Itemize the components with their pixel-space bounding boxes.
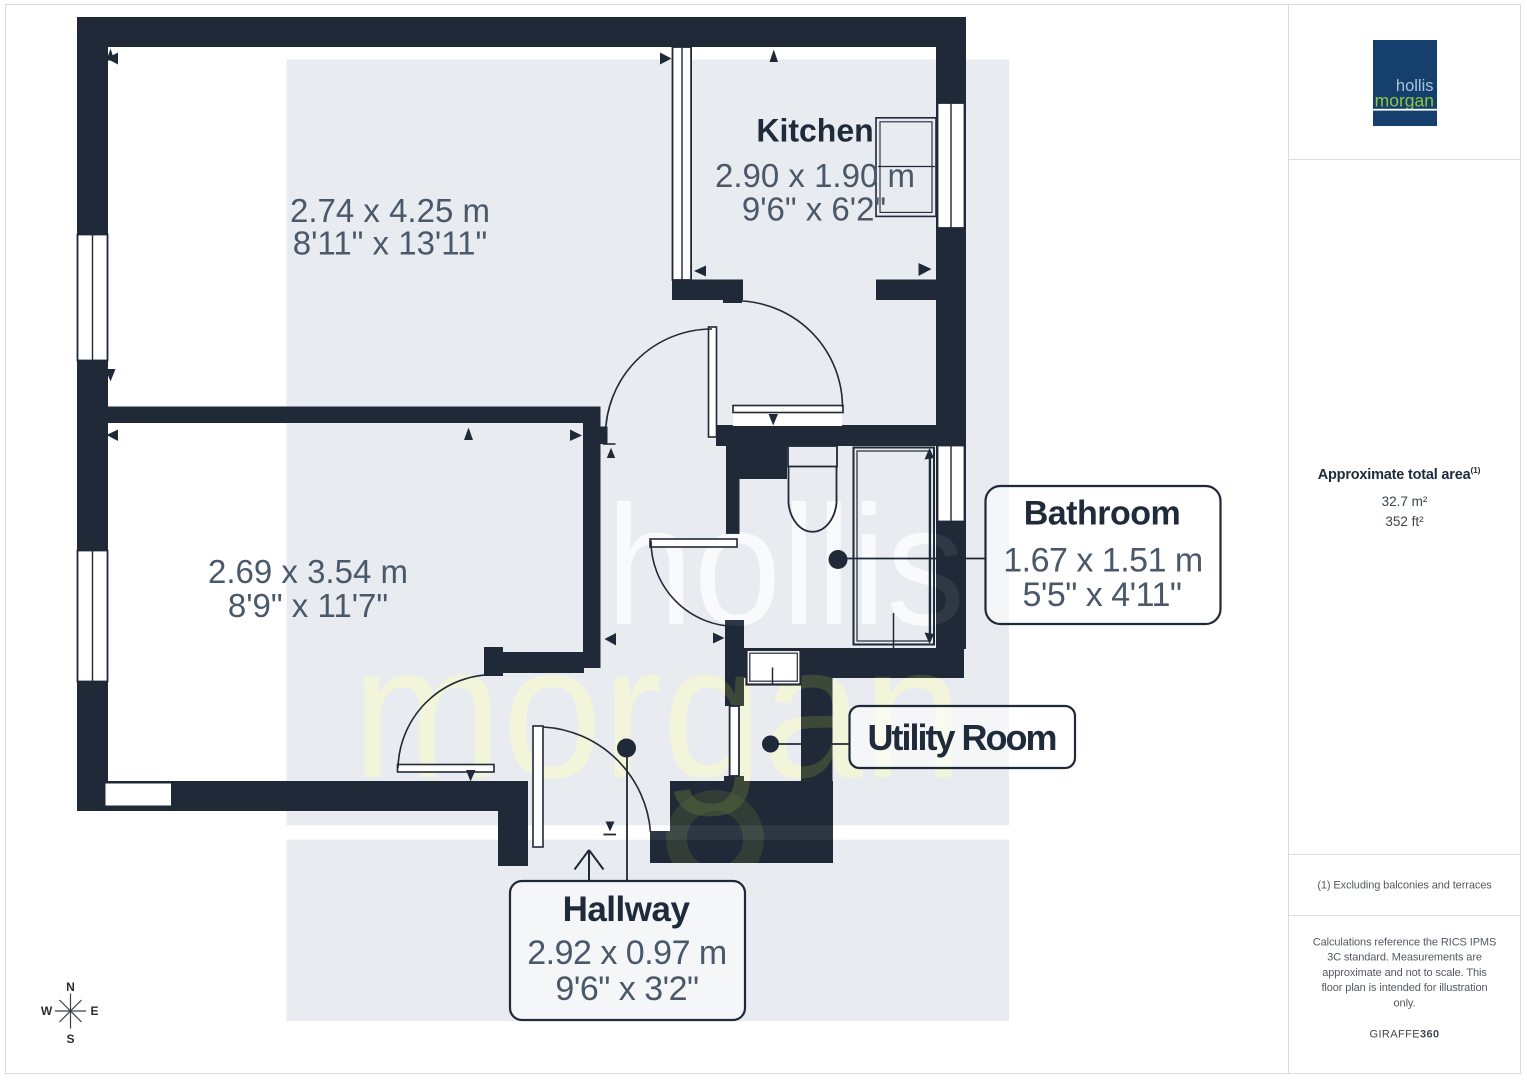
svg-text:Kitchen: Kitchen xyxy=(756,113,873,149)
svg-text:E: E xyxy=(90,1004,98,1018)
svg-text:Calculations reference the RIC: Calculations reference the RICS IPMS xyxy=(1313,937,1496,949)
svg-text:2.69 x 3.54 m: 2.69 x 3.54 m xyxy=(208,553,408,590)
svg-text:9'6" x 6'2": 9'6" x 6'2" xyxy=(742,191,886,228)
svg-text:Hallway: Hallway xyxy=(563,890,691,929)
svg-text:GIRAFFE360: GIRAFFE360 xyxy=(1369,1029,1439,1041)
svg-text:Utility Room: Utility Room xyxy=(868,717,1056,758)
svg-text:morgan: morgan xyxy=(1375,91,1434,111)
svg-text:S: S xyxy=(66,1032,74,1046)
svg-text:32.7 m²: 32.7 m² xyxy=(1382,494,1428,509)
svg-text:5'5" x 4'11": 5'5" x 4'11" xyxy=(1022,576,1181,614)
svg-text:352 ft²: 352 ft² xyxy=(1385,514,1424,529)
svg-text:3C standard. Measurements are: 3C standard. Measurements are xyxy=(1327,952,1482,964)
svg-text:2.92 x 0.97 m: 2.92 x 0.97 m xyxy=(527,934,727,972)
svg-text:1.67 x 1.51 m: 1.67 x 1.51 m xyxy=(1003,542,1203,580)
svg-text:W: W xyxy=(41,1004,53,1018)
svg-text:2.74 x 4.25 m: 2.74 x 4.25 m xyxy=(290,192,490,229)
svg-text:Bathroom: Bathroom xyxy=(1024,495,1181,533)
svg-text:only.: only. xyxy=(1394,997,1416,1009)
svg-text:N: N xyxy=(66,980,75,994)
svg-text:floor plan is intended for ill: floor plan is intended for illustration xyxy=(1321,982,1487,994)
svg-text:approximate and not to scale.: approximate and not to scale. This xyxy=(1322,967,1487,979)
svg-text:8'9" x 11'7": 8'9" x 11'7" xyxy=(228,587,388,624)
svg-text:(1) Excluding balconies and te: (1) Excluding balconies and terraces xyxy=(1317,880,1492,892)
svg-text:2.90 x 1.90 m: 2.90 x 1.90 m xyxy=(715,157,915,194)
svg-text:Approximate total area(1): Approximate total area(1) xyxy=(1318,465,1481,483)
svg-text:8'11" x 13'11": 8'11" x 13'11" xyxy=(293,225,487,262)
svg-text:9'6" x 3'2": 9'6" x 3'2" xyxy=(555,970,698,1008)
